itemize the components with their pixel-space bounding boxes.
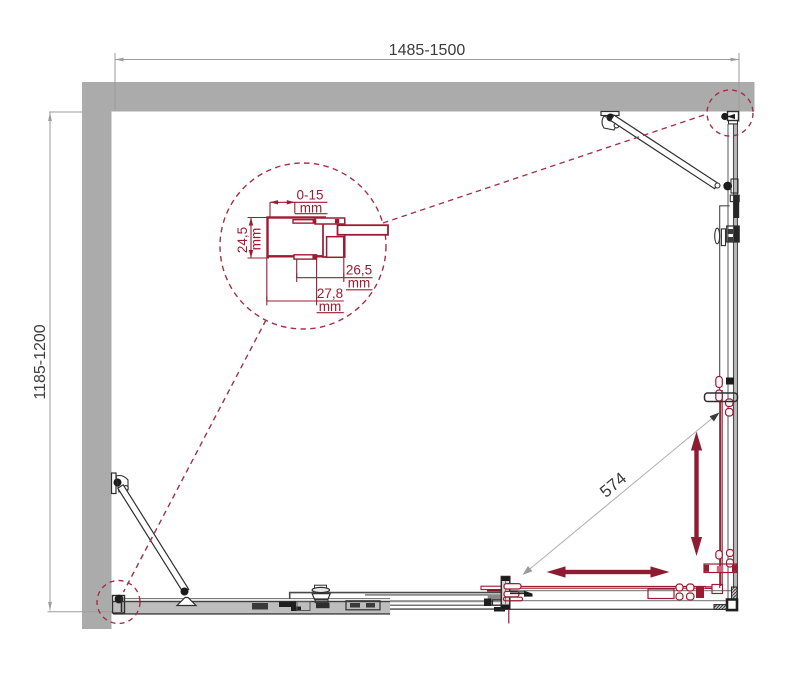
svg-text:mm: mm [319,299,342,314]
svg-text:1185-1200: 1185-1200 [32,324,49,399]
svg-text:mm: mm [300,201,323,216]
svg-text:1485-1500: 1485-1500 [389,42,466,59]
svg-text:mm: mm [249,228,264,251]
svg-text:mm: mm [348,276,371,291]
